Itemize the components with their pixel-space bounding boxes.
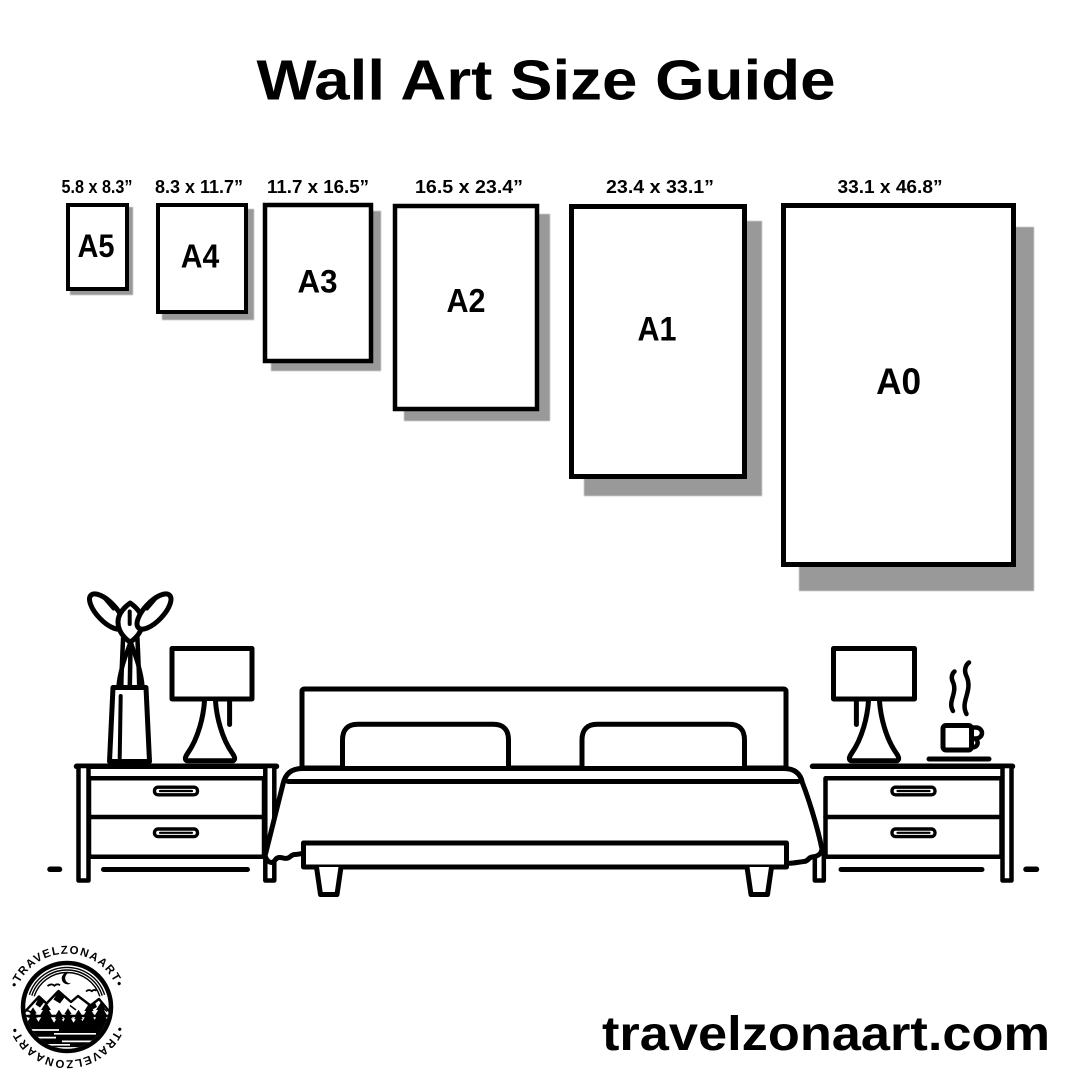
svg-text:8.3 x 11.7”: 8.3 x 11.7” bbox=[155, 177, 243, 197]
svg-text:Wall Art Size Guide: Wall Art Size Guide bbox=[257, 49, 836, 113]
svg-text:A4: A4 bbox=[181, 239, 220, 276]
svg-text:11.7 x 16.5”: 11.7 x 16.5” bbox=[267, 177, 369, 197]
svg-text:33.1 x 46.8”: 33.1 x 46.8” bbox=[838, 177, 943, 197]
svg-text:A0: A0 bbox=[876, 361, 921, 402]
svg-text:A3: A3 bbox=[298, 264, 338, 300]
svg-text:A5: A5 bbox=[78, 228, 115, 264]
svg-text:16.5 x 23.4”: 16.5 x 23.4” bbox=[415, 177, 523, 197]
svg-text:A1: A1 bbox=[638, 310, 677, 348]
svg-text:23.4 x 33.1”: 23.4 x 33.1” bbox=[606, 177, 714, 197]
svg-text:travelzonaart.com: travelzonaart.com bbox=[602, 1008, 1050, 1061]
svg-text:A2: A2 bbox=[447, 283, 486, 320]
svg-text:5.8 x 8.3”: 5.8 x 8.3” bbox=[62, 177, 133, 197]
